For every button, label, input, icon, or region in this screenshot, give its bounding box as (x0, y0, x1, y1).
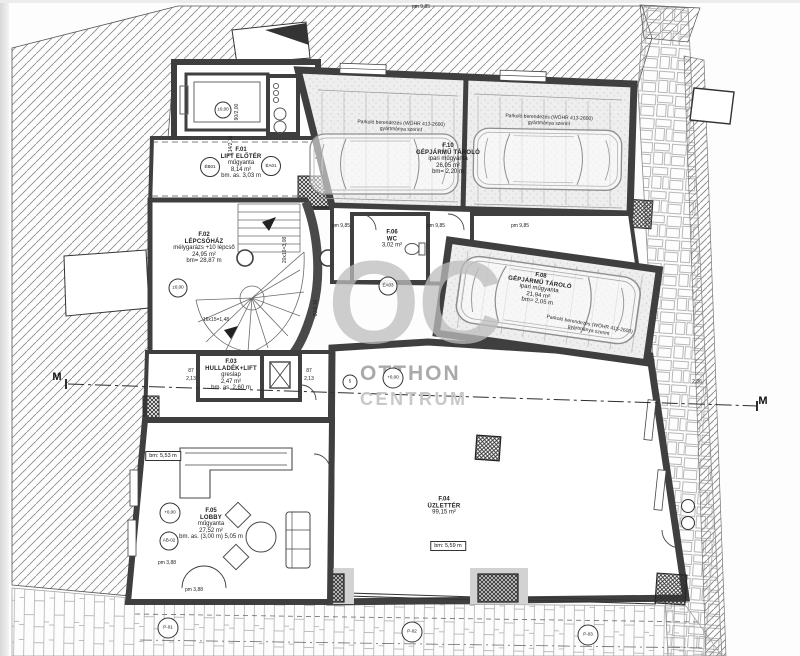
parking-equipment-note: Parkoló berendezés (WÖHR 413-2600)gyártm… (357, 120, 445, 134)
circle-marker: +0,00 (160, 503, 181, 524)
room-label: F.02LÉPCSŐHÁZmélygarázs +10 lépcső24,95 … (173, 232, 235, 265)
circle-marker: P-02 (402, 622, 423, 643)
boxed-height-label: bm: 5,59 m (430, 541, 466, 551)
dimension-label: pm 9,85 (427, 223, 445, 229)
dimension-label: 16x15=1,48 (203, 317, 229, 323)
circle-marker: ÉA03 (379, 277, 398, 296)
room-label: F.06WC3,02 m² (382, 229, 402, 249)
circle-marker: P-03 (578, 625, 599, 646)
parking-equipment-note: Parkoló berendezés (WÖHR 413-2600)gyártm… (545, 315, 633, 341)
dimension-label: 60/2,10 (313, 300, 319, 317)
room-label: F.10GÉPJÁRMŰ TÁROLÓipari műgyanta26,05 m… (416, 143, 480, 176)
circle-marker: AB-02 (160, 532, 179, 551)
dimension-label: 2,13 (304, 376, 314, 382)
dimension-label: pm 9,85 (332, 223, 350, 229)
circle-marker: ÉA01 (261, 156, 281, 176)
dimension-label: 20x16=3,08 (282, 237, 288, 263)
circle-marker (681, 516, 695, 530)
room-label: F.03HULLADÉK+LIFTgreslap2,47 m²bm. as. 2… (205, 359, 257, 392)
parking-equipment-note: Parkoló berendezés (WÖHR 413-2600)gyártm… (505, 114, 593, 128)
dimension-label: 90/2,00 (234, 104, 240, 121)
dimension-label: pm 9,85 (511, 223, 529, 229)
circle-marker: 5 (343, 375, 358, 390)
dimension-label: pm 3,88 (158, 560, 176, 566)
dimension-label: pm 3,88 (185, 587, 203, 593)
circle-marker: ±0,00 (215, 102, 232, 119)
floorplan-page: OC OTTHON CENTRUM F.01LIFT ELŐTÉRműgyant… (0, 0, 800, 656)
dimension-label: 87 (188, 368, 194, 374)
dimension-label: pm 9,85 (412, 4, 430, 10)
room-label: F.08GÉPJÁRMŰ TÁROLÓipari műgyanta21,94 m… (505, 268, 573, 309)
circle-marker: ±0,00 (169, 279, 188, 298)
section-marker-label: M (758, 395, 767, 407)
dimension-label: 87 (306, 368, 312, 374)
dimension-label: 2,13 (186, 376, 196, 382)
circle-marker: P-01 (158, 618, 179, 639)
section-marker-label: M (52, 371, 61, 383)
boxed-height-label: bm: 5,53 m (145, 451, 181, 461)
room-label: F.04ÜZLETTÉR99,15 m² (428, 496, 461, 516)
dimension-label: 2,36 (692, 379, 702, 385)
room-label: F.05LOBBYműgyanta27,52 m²bm. as. (3,00 m… (179, 508, 243, 541)
room-label: F.01LIFT ELŐTÉRműgyanta8,14 m²bm. as. 3,… (221, 147, 262, 180)
dimension-label: 1,14/2,16 (228, 136, 234, 157)
circle-marker: +0,00 (383, 368, 404, 389)
circle-marker (681, 499, 695, 513)
circle-marker: ÉB01 (200, 157, 220, 177)
labels-overlay: F.01LIFT ELŐTÉRműgyanta8,14 m²bm. as. 3,… (0, 0, 800, 656)
